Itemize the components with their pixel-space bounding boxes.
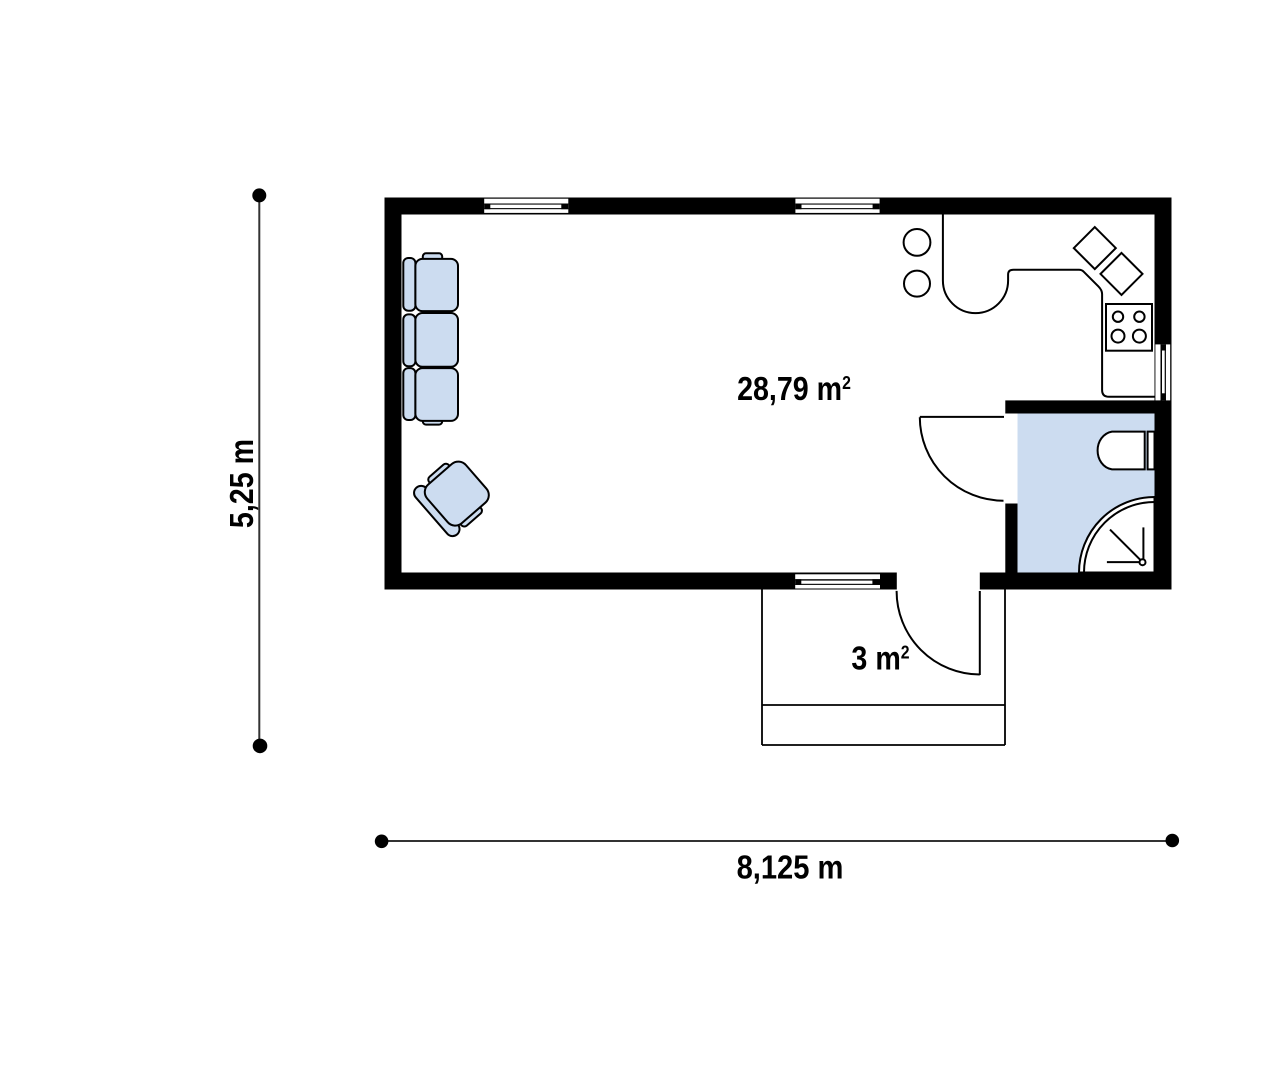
svg-text:8,125 m: 8,125 m xyxy=(737,849,844,886)
svg-text:28,79 m2: 28,79 m2 xyxy=(737,370,851,408)
svg-text:5,25 m: 5,25 m xyxy=(223,439,261,528)
